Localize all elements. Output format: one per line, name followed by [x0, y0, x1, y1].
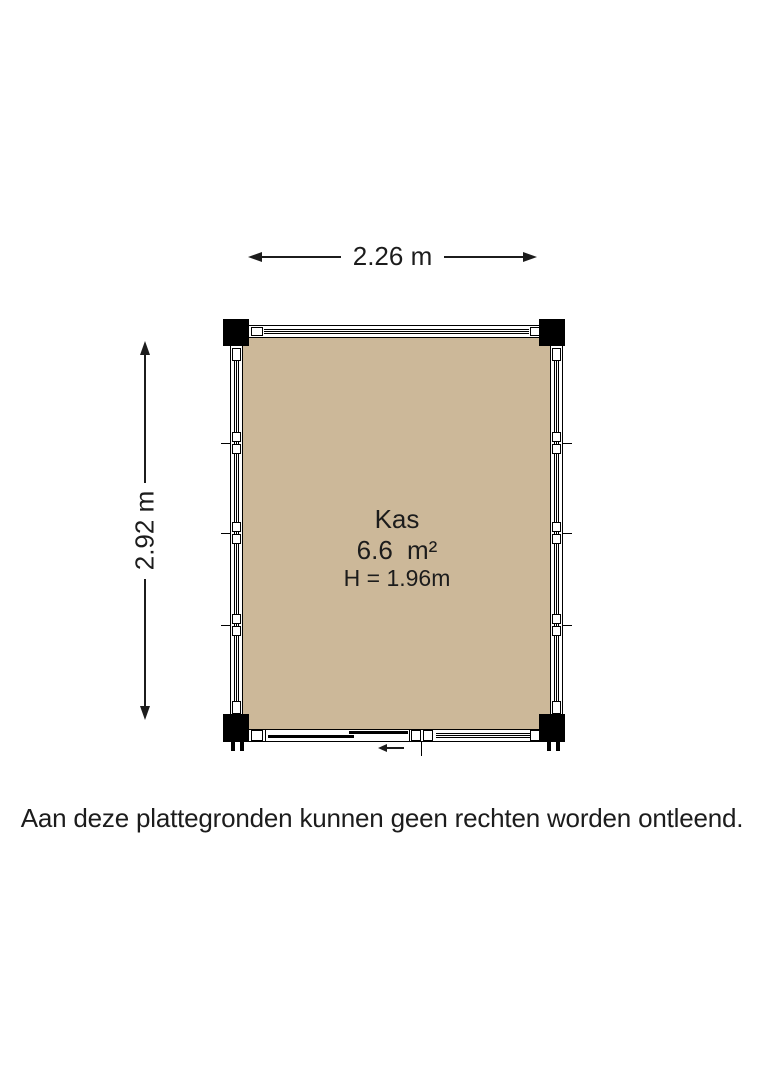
- dimension-arrowhead-left-icon: [248, 252, 262, 262]
- width-dimension: 2.26 m: [248, 244, 537, 269]
- dimension-line: [262, 256, 341, 258]
- door-jamb: [409, 730, 410, 741]
- dimension-arrowhead-down-icon: [140, 706, 150, 720]
- mullion-tick: [562, 443, 572, 444]
- mullion-tick: [562, 625, 572, 626]
- mullion: [552, 348, 561, 361]
- mullion: [232, 534, 241, 544]
- door-slide-arrowhead-icon: [378, 744, 387, 752]
- height-dimension-label: 2.92 m: [105, 483, 185, 579]
- corner-post-top-right: [539, 319, 565, 346]
- height-dimension: 2.92 m: [131, 341, 158, 720]
- disclaimer-text: Aan deze plattegronden kunnen geen recht…: [0, 803, 764, 834]
- mullion: [552, 626, 561, 636]
- dimension-line: [144, 579, 146, 707]
- mullion: [552, 701, 561, 714]
- corner-post-top-left: [223, 319, 249, 346]
- dimension-arrowhead-up-icon: [140, 341, 150, 355]
- room-area: 6.6 m²: [296, 535, 498, 566]
- mullion: [232, 522, 241, 532]
- sliding-door-panel: [268, 735, 354, 738]
- mullion-tick: [221, 625, 231, 626]
- mullion: [251, 327, 263, 336]
- mullion: [232, 701, 241, 714]
- mullion: [552, 432, 561, 442]
- mullion: [552, 534, 561, 544]
- corner-post-bottom-left: [223, 714, 249, 742]
- mullion: [232, 626, 241, 636]
- glass-panel: [264, 329, 529, 334]
- sliding-door-panel: [349, 731, 408, 734]
- door-jamb: [265, 730, 266, 741]
- mullion-tick: [421, 742, 422, 756]
- room-label: Kas 6.6 m² H = 1.96m: [296, 504, 498, 592]
- corner-post-bottom-right: [539, 714, 565, 742]
- mullion: [552, 522, 561, 532]
- mullion: [232, 432, 241, 442]
- glass-panel: [436, 733, 534, 738]
- post-anchor: [231, 742, 235, 751]
- mullion: [423, 730, 433, 741]
- room-name: Kas: [296, 504, 498, 535]
- mullion-tick: [562, 533, 572, 534]
- mullion: [232, 348, 241, 361]
- post-anchor: [556, 742, 560, 751]
- post-anchor: [240, 742, 244, 751]
- dimension-line: [444, 256, 523, 258]
- room-ceiling-height: H = 1.96m: [296, 565, 498, 592]
- width-dimension-label: 2.26 m: [341, 241, 445, 272]
- dimension-line: [144, 355, 146, 483]
- wall-top: [230, 325, 563, 338]
- mullion: [232, 614, 241, 624]
- door-slide-arrow-icon: [386, 747, 404, 749]
- mullion-tick: [221, 533, 231, 534]
- mullion-tick: [221, 443, 231, 444]
- mullion: [552, 614, 561, 624]
- mullion: [411, 730, 421, 741]
- post-anchor: [547, 742, 551, 751]
- dimension-arrowhead-right-icon: [523, 252, 537, 262]
- mullion: [251, 730, 263, 741]
- mullion: [552, 444, 561, 454]
- mullion: [232, 444, 241, 454]
